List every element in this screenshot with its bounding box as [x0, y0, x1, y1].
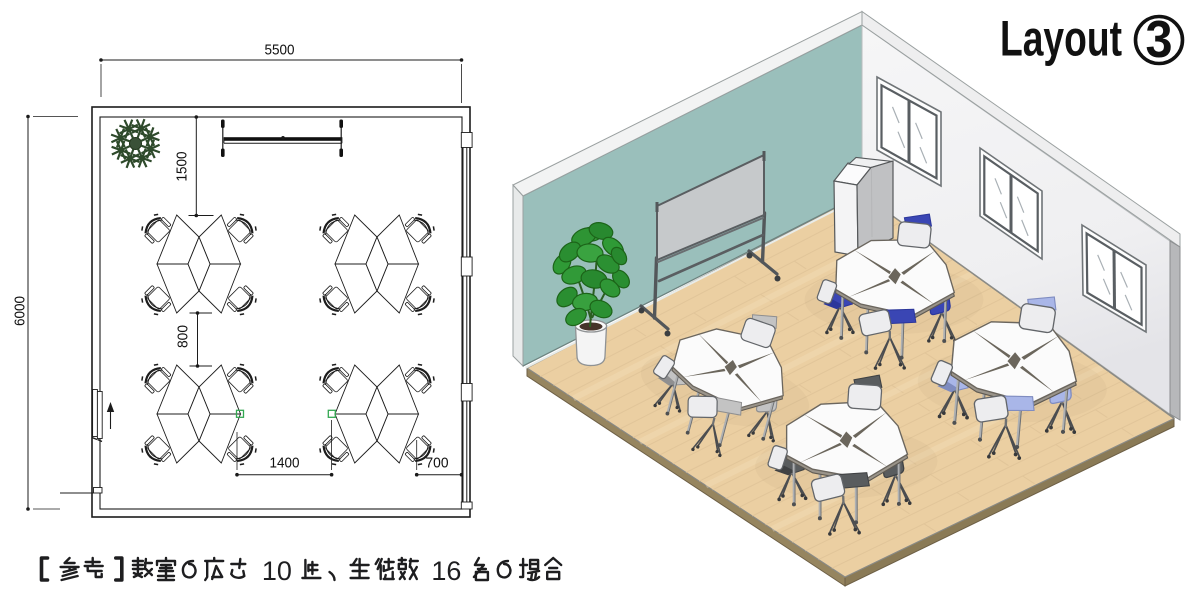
- svg-text:16: 16: [431, 556, 461, 586]
- svg-text:1400: 1400: [270, 455, 300, 472]
- svg-text:3: 3: [1146, 11, 1173, 69]
- svg-text:Layout: Layout: [1000, 11, 1122, 67]
- svg-text:700: 700: [426, 455, 449, 472]
- svg-text:800: 800: [175, 325, 192, 348]
- svg-text:1500: 1500: [174, 152, 191, 182]
- svg-text:5500: 5500: [265, 42, 295, 59]
- svg-text:10: 10: [262, 556, 292, 586]
- svg-text:6000: 6000: [12, 296, 29, 326]
